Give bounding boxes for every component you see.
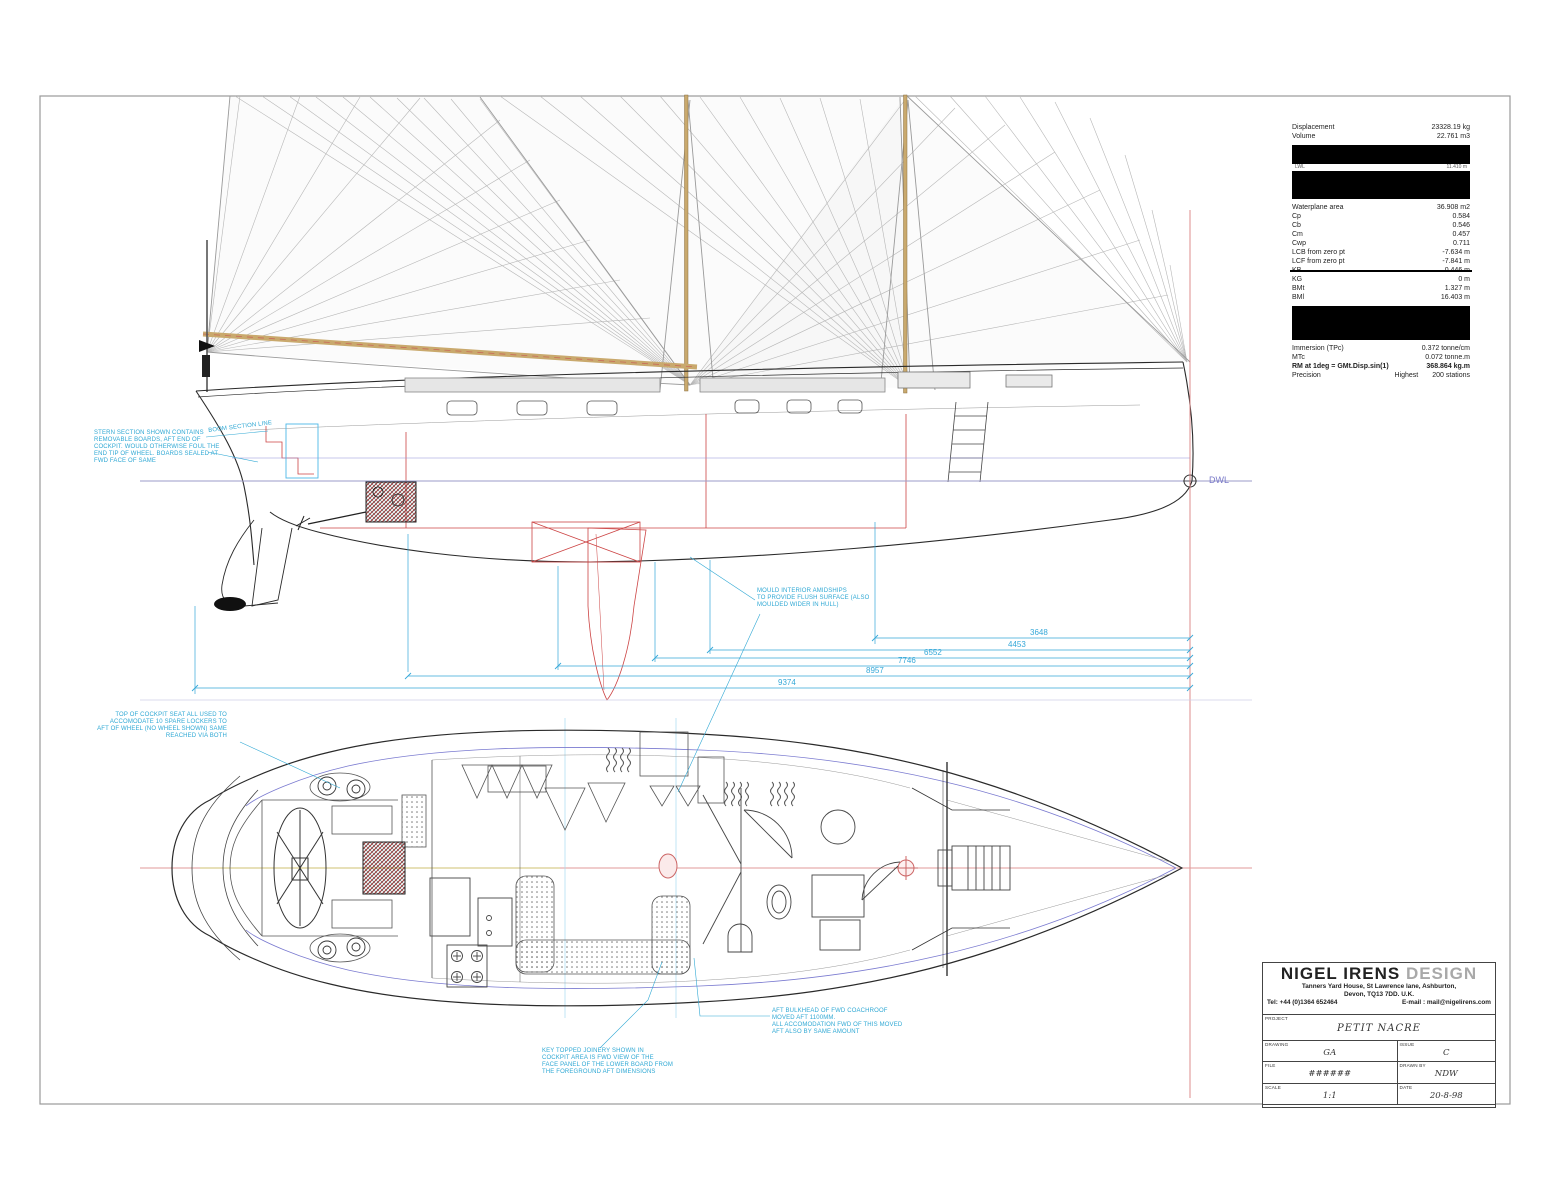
bulkhead-note: AFT BULKHEAD OF FWD COACHROOF MOVED AFT … [772,1008,902,1036]
title-block: NIGEL IRENS DESIGN Tanners Yard House, S… [1262,962,1496,1108]
dimension-lines [140,522,1252,700]
title-block-grid: DRAWING GA ISSUE C FILE ###### DRAWN BY … [1263,1041,1495,1105]
title-block-header: NIGEL IRENS DESIGN Tanners Yard House, S… [1263,963,1495,1015]
scale-cell: SCALE 1:1 [1263,1084,1398,1105]
drawing-cell: DRAWING GA [1263,1041,1398,1062]
contact-row: Tel: +44 (0)1364 652464 E-mail : mail@ni… [1263,998,1495,1006]
cabin-window [447,401,477,415]
engine-plan [363,842,405,894]
mid-note: MOULD INTERIOR AMIDSHIPS TO PROVIDE FLUS… [757,588,869,609]
main-mast-plan [659,854,677,878]
table-row: Cwp0.711 [1292,239,1470,248]
plan-note: TOP OF COCKPIT SEAT ALL USED TO ACCOMODA… [95,712,227,740]
dim-value: 4453 [1008,640,1026,649]
project-cell: PROJECT PETIT NACRE [1263,1015,1495,1041]
heads-compartment [703,788,900,952]
table-row: Displacement23328.19 kg [1292,123,1470,132]
settee [516,876,690,974]
date-cell: DATE 20-8-98 [1398,1084,1495,1105]
phone-number: Tel: +44 (0)1364 652464 [1267,999,1337,1006]
cockpit-detail-box [286,424,318,478]
drawn-by-cell: DRAWN BY NDW [1398,1062,1495,1083]
company-address-line2: Devon, TQ13 7DD. U.K. [1263,991,1495,999]
fore-mast [904,95,908,393]
dim-value: 7746 [898,656,916,665]
project-name: PETIT NACRE [1263,1023,1495,1034]
prop-shaft [308,512,366,524]
toilet [767,885,791,919]
plan-view [140,718,1252,1018]
issue-cell: ISSUE C [1398,1041,1495,1062]
stern-note: STERN SECTION SHOWN CONTAINS REMOVABLE B… [94,430,220,465]
table-row: Immersion (TPc)0.372 tonne/cm [1292,344,1470,353]
cabin-window [787,400,811,413]
fore-mast-plan [894,856,918,880]
engine-profile [296,482,416,530]
coachroof-profile [405,372,1052,482]
table-row: BMl16.403 m [1292,293,1470,302]
main-mast [685,95,689,391]
cabin-window [517,401,547,415]
rm-row: RM at 1deg = GMt.Disp.sin(1)368.864 kg.m [1292,362,1470,371]
table-row: MTc0.072 tonne.m [1292,353,1470,362]
hydrostatics-table: Displacement23328.19 kg Volume22.761 m3 … [1292,123,1470,380]
table-row: LCF from zero pt-7.841 m [1292,257,1470,266]
redacted-block: LWL11.410 m [1292,145,1470,199]
dim-value: 3648 [1030,628,1048,637]
struck-table-row: KB0.446 m [1292,266,1470,275]
masked-row: LWL11.410 m [1292,164,1470,171]
forward-bulkhead [912,762,1010,976]
ballast-shoe [214,597,246,611]
dim-value: 6552 [924,648,942,657]
cabin-window [735,400,759,413]
dim-value: 9374 [778,678,796,687]
company-address-line1: Tanners Yard House, St Lawrence lane, As… [1263,983,1495,991]
companionway-ladder [948,402,988,482]
table-row: Cm0.457 [1292,230,1470,239]
dwl-label: DWL [1209,475,1229,485]
table-row: Cb0.546 [1292,221,1470,230]
profile-red-details [266,414,906,700]
dimension-labels: 3648 4453 6552 7746 8957 9374 [778,628,1048,687]
file-cell: FILE ###### [1263,1062,1398,1083]
table-row: Cp0.584 [1292,212,1470,221]
table-row: BMt1.327 m [1292,284,1470,293]
table-row: Waterplane area36.908 m2 [1292,203,1470,212]
dim-value: 8957 [866,666,884,675]
table-row: Volume22.761 m3 [1292,132,1470,141]
sail-plan [207,95,1190,392]
redacted-block [1292,306,1470,340]
company-name: NIGEL IRENS DESIGN [1263,965,1495,983]
joinery-note: KEY TOPPED JOINERY SHOWN IN COCKPIT AREA… [542,1048,673,1076]
email-address: E-mail : mail@nigelirens.com [1402,999,1491,1006]
blueprint-page: 3648 4453 6552 7746 8957 9374 [0,0,1554,1200]
precision-row: PrecisionHighest200 stations [1292,371,1470,380]
hull-profile [196,362,1193,611]
galley [430,878,512,987]
cabin-window [587,401,617,415]
cabin-window [838,400,862,413]
table-row: LCB from zero pt-7.634 m [1292,248,1470,257]
table-row: KG0 m [1292,275,1470,284]
